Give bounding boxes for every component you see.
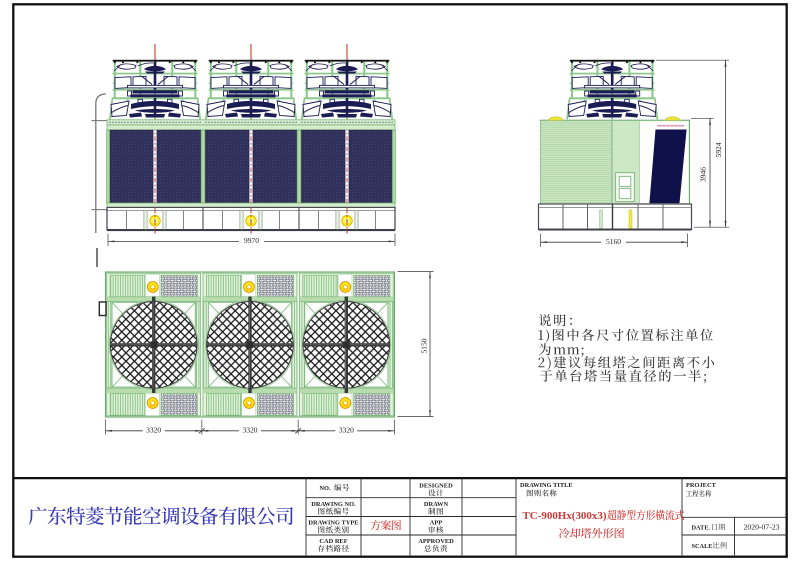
svg-text:DRAWING NO.: DRAWING NO.	[311, 501, 356, 508]
svg-text:DATE: DATE	[692, 525, 709, 532]
svg-text:CAD REF: CAD REF	[319, 538, 347, 545]
svg-text:DRAWN: DRAWN	[424, 501, 449, 508]
svg-text:SCALE: SCALE	[692, 543, 713, 550]
svg-text:9970: 9970	[244, 238, 260, 245]
svg-text:DRAWING TITLE: DRAWING TITLE	[520, 482, 573, 489]
svg-text:NO.: NO.	[319, 485, 331, 492]
svg-text:5150: 5150	[422, 338, 429, 354]
svg-text:3946: 3946	[701, 166, 708, 182]
svg-text:3320: 3320	[146, 428, 162, 435]
svg-text:APPROVED: APPROVED	[418, 538, 454, 545]
svg-text:PROJECT: PROJECT	[686, 482, 717, 489]
svg-text:DRAWING TYPE: DRAWING TYPE	[308, 519, 358, 526]
svg-text:3320: 3320	[243, 428, 259, 435]
svg-text:APP: APP	[430, 519, 443, 526]
svg-text:5924: 5924	[716, 142, 723, 158]
svg-text:3320: 3320	[339, 428, 355, 435]
svg-text:DESIGNED: DESIGNED	[419, 482, 453, 489]
svg-text:2020-07-23: 2020-07-23	[744, 524, 781, 532]
svg-text:5160: 5160	[606, 239, 622, 246]
svg-text:TC-900Hx(300x3): TC-900Hx(300x3)	[523, 510, 607, 522]
